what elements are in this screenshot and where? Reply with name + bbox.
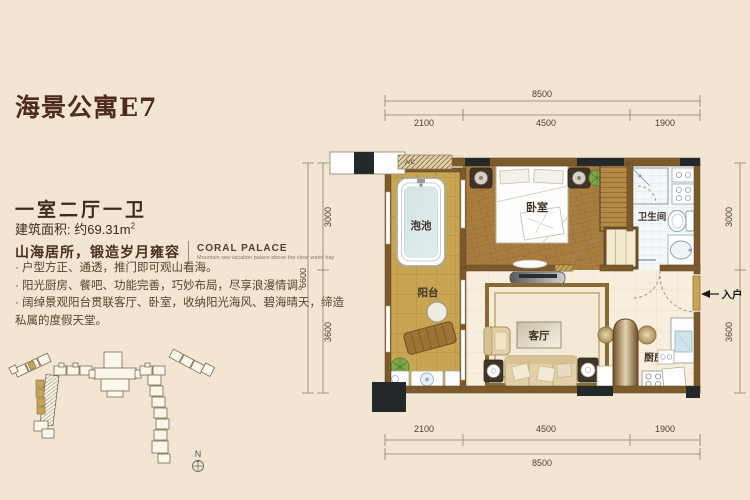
area-superscript: 2 (131, 222, 135, 231)
round-table-icon (427, 302, 447, 322)
stool-icon (638, 326, 656, 344)
room-label-bathroom: 卫生间 (638, 211, 667, 223)
building-row-left (54, 363, 92, 375)
dimensions-right: 3000 3600 (724, 163, 746, 393)
north-label: N (195, 449, 202, 459)
clubhouse (89, 352, 141, 397)
dim-left-seg1: 3000 (323, 207, 333, 227)
dim-top-seg1: 2100 (414, 118, 434, 128)
dim-bottom-total: 8500 (532, 458, 552, 468)
dim-left-total: 6600 (300, 268, 308, 288)
ac-label: A/C (405, 160, 416, 166)
slogan-text: 山海居所，锻造岁月雍容 (15, 242, 180, 262)
floor-plan: 8500 2100 4500 1900 2100 4500 1900 8500 … (300, 80, 750, 500)
building-row-right (140, 363, 165, 375)
shower-icon (632, 168, 668, 204)
cabinet-icon (597, 366, 615, 387)
feature-list: 户型方正、通透，推门即可观山看海。 阳光厨房、餐吧、功能完善，巧妙布局，尽享浪漫… (15, 260, 345, 330)
side-table-icon (484, 360, 503, 382)
closet-icon (605, 228, 637, 268)
layout-type: 一室二厅一卫 (15, 195, 147, 222)
room-label-balcony: 阳台 (418, 286, 439, 299)
highlighted-unit (37, 407, 45, 414)
bath-shelf-icon (672, 168, 695, 204)
side-table-icon (578, 358, 598, 382)
area-value: 约69.31m (74, 222, 130, 237)
coffee-table-icon: 客厅 (517, 322, 561, 348)
room-label-pool: 泡池 (411, 219, 432, 232)
sofa-icon (505, 356, 577, 387)
nightstand-icon (470, 168, 492, 188)
dimensions-bottom: 2100 4500 1900 8500 (385, 424, 700, 468)
dimensions-top: 8500 2100 4500 1900 (385, 89, 700, 128)
room-label-entry: 入户 (722, 288, 743, 301)
building-wing-northeast (169, 346, 214, 378)
highlighted-unit (36, 389, 44, 397)
dim-top-seg3: 1900 (655, 118, 675, 128)
armchair-icon (484, 327, 510, 355)
room-label-bedroom: 卧室 (526, 200, 548, 214)
site-plan: N (6, 333, 234, 485)
north-indicator: N (193, 449, 204, 472)
dim-bottom-seg1: 2100 (414, 424, 434, 434)
feature-item: 阳光厨房、餐吧、功能完善，巧妙布局，尽享浪漫情调。 (15, 278, 345, 296)
stool-icon (598, 327, 614, 343)
room-label-living: 客厅 (528, 329, 550, 342)
dim-top-seg2: 4500 (536, 118, 556, 128)
tv-cabinet-icon (510, 272, 565, 284)
fridge-icon (671, 318, 696, 363)
dim-top-total: 8500 (532, 89, 552, 99)
dimensions-left: 6600 3000 3600 (300, 163, 333, 393)
entry-marker: 入户 (701, 288, 743, 301)
page-title: 海景公寓E7 (15, 88, 157, 124)
toilet-icon (668, 211, 694, 232)
sink-icon (668, 235, 695, 265)
entry-door-icon (693, 276, 700, 310)
highlighted-unit (36, 380, 44, 388)
building-column-right (148, 375, 170, 463)
kitchen-counter-icon (613, 319, 638, 391)
nightstand-icon (568, 168, 590, 188)
dim-left-seg2: 3600 (323, 322, 333, 342)
dim-bottom-seg2: 4500 (536, 424, 556, 434)
wardrobe-icon (600, 165, 628, 231)
building-column-left (34, 374, 59, 438)
dim-bottom-seg3: 1900 (655, 424, 675, 434)
dim-right-seg1: 3000 (724, 207, 734, 227)
feature-item: 阔绰景观阳台贯联客厅、卧室，收纳阳光海风、碧海晴天，缔造私属的度假天堂。 (15, 295, 345, 330)
entry-arrow-icon (701, 290, 710, 298)
feature-item: 户型方正、通透，推门即可观山看海。 (15, 260, 345, 278)
dim-right-seg2: 3600 (724, 322, 734, 342)
building-area: 建筑面积: 约69.31m2 (15, 219, 135, 238)
highlighted-unit (37, 398, 45, 406)
brochure-page: 海景公寓E7 一室二厅一卫 建筑面积: 约69.31m2 山海居所，锻造岁月雍容… (0, 0, 750, 500)
building-wing-northwest (9, 351, 51, 379)
area-label: 建筑面积: (15, 222, 74, 237)
